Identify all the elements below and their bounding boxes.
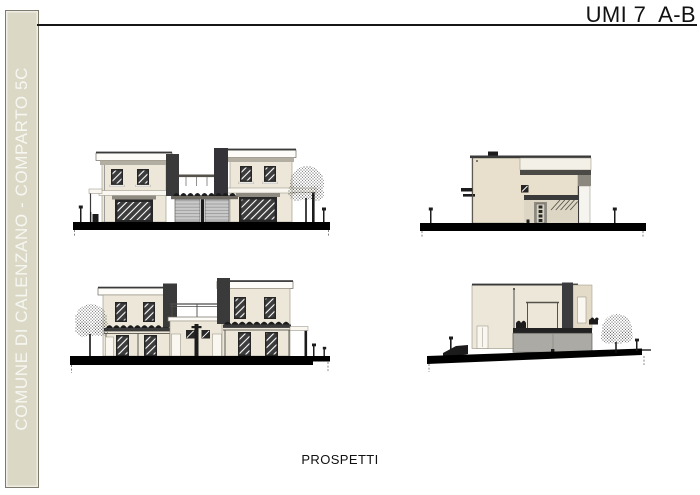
stair-towers	[166, 148, 228, 196]
entry-door	[534, 202, 547, 223]
sheet-title: UMI 7 A-B	[586, 2, 696, 28]
right-house	[217, 278, 308, 356]
sheet-caption: PROSPETTI	[240, 452, 440, 467]
tree	[601, 314, 634, 353]
elevation-front-drawing	[60, 133, 340, 238]
building-side	[461, 152, 591, 224]
right-house	[226, 149, 296, 222]
elevation-rear-drawing	[60, 270, 340, 380]
elevation-side-a-drawing	[410, 133, 660, 238]
ground-line	[420, 223, 646, 237]
tree	[288, 166, 324, 222]
drawing-sheet: COMUNE DI CALENZANO - COMPARTO 5C UMI 7 …	[0, 0, 700, 495]
left-house	[98, 284, 177, 357]
sidebar-label: COMUNE DI CALENZANO - COMPARTO 5C	[12, 67, 32, 431]
boundary-posts	[312, 344, 326, 357]
ground-line	[70, 356, 330, 373]
title-block-sidebar: COMUNE DI CALENZANO - COMPARTO 5C	[5, 10, 39, 488]
elevation-side-b-drawing	[410, 270, 662, 380]
left-house	[89, 152, 172, 222]
building-side	[472, 283, 599, 353]
ground-line	[73, 222, 330, 237]
